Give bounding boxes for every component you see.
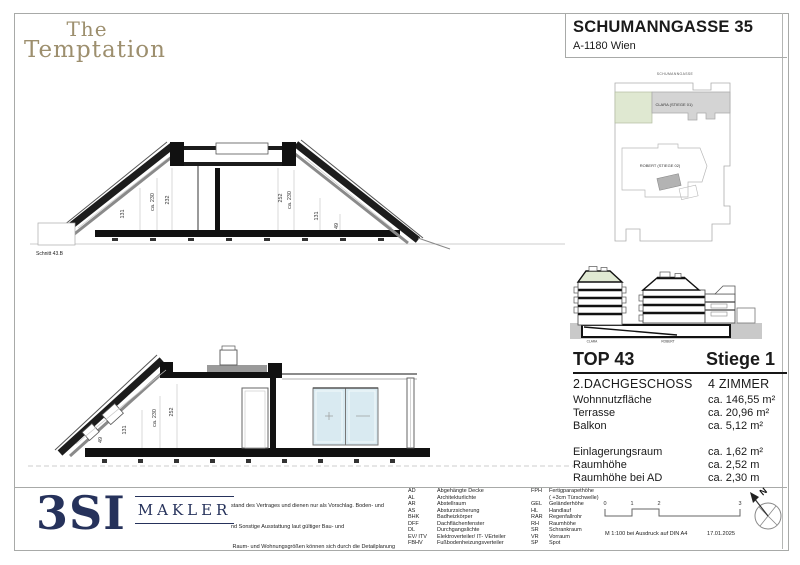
disclaimer-line: nd Sonstige Ausstattung laut gültiger Ba…: [231, 524, 409, 531]
parapet-right: [282, 142, 296, 166]
center-wall: [270, 378, 276, 448]
clara-highlight-green: [615, 92, 652, 123]
brand-logo: The Temptation: [24, 19, 150, 62]
legend-label: Fußbodenheizungsverteiler: [437, 540, 504, 547]
row-value: ca. 146,55 m²: [708, 394, 775, 406]
unit-top-number: TOP 43: [573, 349, 634, 370]
disclaimer-text: stand des Vertrages und dienen nur als V…: [231, 489, 409, 565]
scale-bar: 0 1 2 3: [598, 497, 750, 525]
roof-gravel-band: [207, 365, 267, 372]
dimension-label: ca. 230: [152, 409, 158, 427]
glass-sliding-door: [313, 388, 378, 445]
dimension-label: ca. 230: [150, 193, 156, 211]
unit-floor: 2.DACHGESCHOSS: [573, 377, 693, 391]
scale-tick-0: 0: [603, 501, 606, 507]
row-label: Wohnnutzfläche: [573, 394, 652, 406]
interior-door: [242, 388, 268, 448]
section-drawing-2: 49 131 ca. 230 252: [20, 338, 580, 474]
north-needle-head: [750, 492, 759, 503]
basement-outline: [582, 325, 730, 337]
plan-sheet: The Temptation SCHUMANNGASSE 35 A-1180 W…: [0, 0, 800, 565]
broker-logo-makler: MAKLER: [135, 496, 235, 524]
roof-hatch-cap: [222, 346, 235, 350]
joist-marks: [102, 459, 395, 463]
adjacent-structure-outline: [38, 223, 75, 245]
roof-left-inner: [63, 152, 178, 243]
street-title: SCHUMANNGASSE 35: [573, 18, 783, 37]
brand-logo-line1: The: [24, 19, 150, 39]
floor-slab: [95, 230, 400, 237]
legend-column-2: FPHFertigparapethöhe ( +3cm Türschwelle)…: [531, 488, 599, 547]
street-elevation: CLARA ROBERT: [565, 266, 770, 346]
row-label: Terrasse: [573, 407, 615, 419]
brand-logo-line2: Temptation: [24, 39, 150, 62]
joist-marks: [112, 238, 384, 241]
legend-abbr: FBHV: [408, 540, 437, 547]
row-label: Balkon: [573, 420, 607, 432]
row-value: ca. 2,30 m: [708, 472, 759, 484]
north-needle: [754, 498, 768, 516]
scale-bar-profile: [605, 509, 740, 516]
dimension-label: 252: [278, 194, 284, 203]
footer-top-border: [14, 487, 787, 488]
robert-building: [639, 272, 755, 323]
elevation-robert-label: ROBERT: [661, 340, 674, 344]
row-label: Einlagerungsraum: [573, 446, 662, 458]
scale-tick-2: 2: [657, 501, 660, 507]
header-box-bottom-border: [565, 57, 787, 58]
legend-column-1: ADAbgehängte Decke ALArchitekturlichte A…: [408, 488, 506, 547]
parapet-right: [268, 363, 282, 378]
row-value: ca. 2,52 m: [708, 459, 759, 471]
row-label: Raumhöhe: [573, 459, 627, 471]
legend-abbr: SP: [531, 540, 549, 547]
address-header: SCHUMANNGASSE 35 A-1180 Wien: [573, 18, 783, 52]
dimension-label: 131: [122, 426, 128, 435]
elevation-clara-label: CLARA: [587, 340, 599, 344]
legend-row: SPSpot: [531, 540, 599, 547]
site-plan: SCHUMANNGASSE CLARA (STIEGE 01) ROBERT (…: [600, 66, 750, 248]
broker-logo: 3SI MAKLER: [36, 489, 234, 537]
dimension-label: 49: [98, 437, 104, 443]
clara-building: [574, 267, 626, 326]
row-label: Raumhöhe bei AD: [573, 472, 662, 484]
unit-info-table: TOP 43 Stiege 1 2.DACHGESCHOSS 4 ZIMMER …: [573, 349, 787, 485]
roof-right-inner: [290, 150, 408, 243]
scale-note: M 1:100 bei Ausdruck auf DIN A4: [605, 531, 687, 537]
north-letter: N: [758, 486, 769, 498]
unit-table-rule: [573, 372, 787, 374]
roof-outer-line-right: [301, 140, 423, 238]
disclaimer-line: Raum- und Wohnungsgrößen können sich dur…: [231, 544, 409, 551]
plan-date: 17.01.2025: [707, 531, 735, 537]
roof-foot-right: [418, 238, 450, 249]
floor-slab: [85, 448, 430, 457]
interior-wall-black: [215, 168, 220, 230]
row-value: ca. 1,62 m²: [708, 446, 763, 458]
unit-stiege: Stiege 1: [706, 349, 775, 370]
row-value: ca. 20,96 m²: [708, 407, 769, 419]
north-arrow: N: [742, 485, 794, 541]
clara-roof-green: [578, 271, 622, 282]
roof-hatch: [220, 350, 237, 365]
unit-rooms: 4 ZIMMER: [708, 377, 769, 391]
header-box-left-border: [565, 13, 566, 57]
dimension-label: 49: [334, 223, 340, 229]
dimension-label: 252: [169, 408, 175, 417]
roof-right: [296, 144, 418, 240]
dimension-label: 232: [165, 196, 171, 205]
clara-label: CLARA (STIEGE 01): [655, 102, 693, 107]
scale-tick-1: 1: [630, 501, 633, 507]
row-value: ca. 5,12 m²: [708, 420, 763, 432]
disclaimer-line: stand des Vertrages und dienen nur als V…: [231, 503, 409, 510]
robert-label: ROBERT (STIEGE 02): [640, 163, 681, 168]
section-label: Schnitt 43.B: [36, 251, 64, 257]
ceiling-band: [160, 372, 272, 378]
parapet-left: [170, 142, 184, 166]
dimension-label: 131: [120, 210, 126, 219]
legend-label: Spot: [549, 540, 560, 547]
broker-logo-3si: 3SI: [36, 489, 126, 537]
section-drawing-1: 131 ca. 230 232 252 ca. 230 131 49 Schni…: [20, 128, 580, 262]
dimension-label: 131: [314, 212, 320, 221]
street-label: SCHUMANNGASSE: [657, 72, 694, 76]
city-subtitle: A-1180 Wien: [573, 40, 783, 52]
dimension-label: ca. 230: [287, 191, 293, 209]
rooftop-box: [216, 143, 268, 154]
legend-row: FBHVFußbodenheizungsverteiler: [408, 540, 506, 547]
